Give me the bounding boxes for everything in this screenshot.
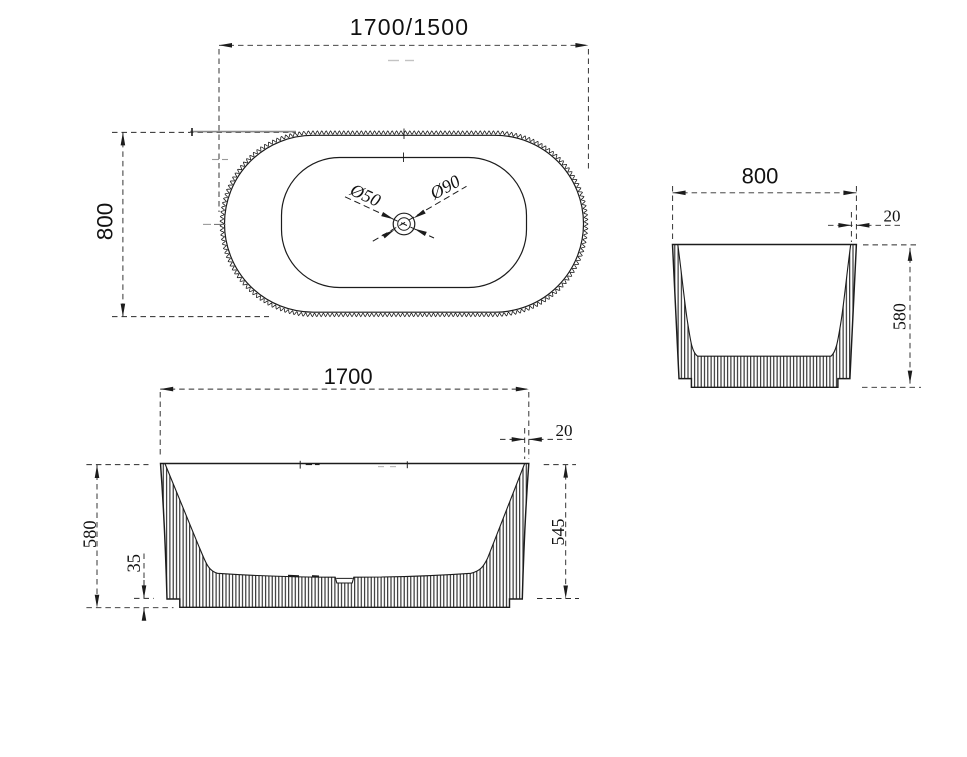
svg-text:800: 800 [742,164,779,189]
svg-text:545: 545 [548,519,568,546]
svg-text:580: 580 [81,520,101,548]
svg-text:800: 800 [93,203,118,241]
svg-text:1700/1500: 1700/1500 [350,14,470,40]
svg-text:35: 35 [125,554,145,573]
svg-text:20: 20 [556,421,573,440]
svg-text:20: 20 [884,207,901,226]
svg-text:580: 580 [889,303,909,330]
svg-text:1700: 1700 [324,364,373,389]
